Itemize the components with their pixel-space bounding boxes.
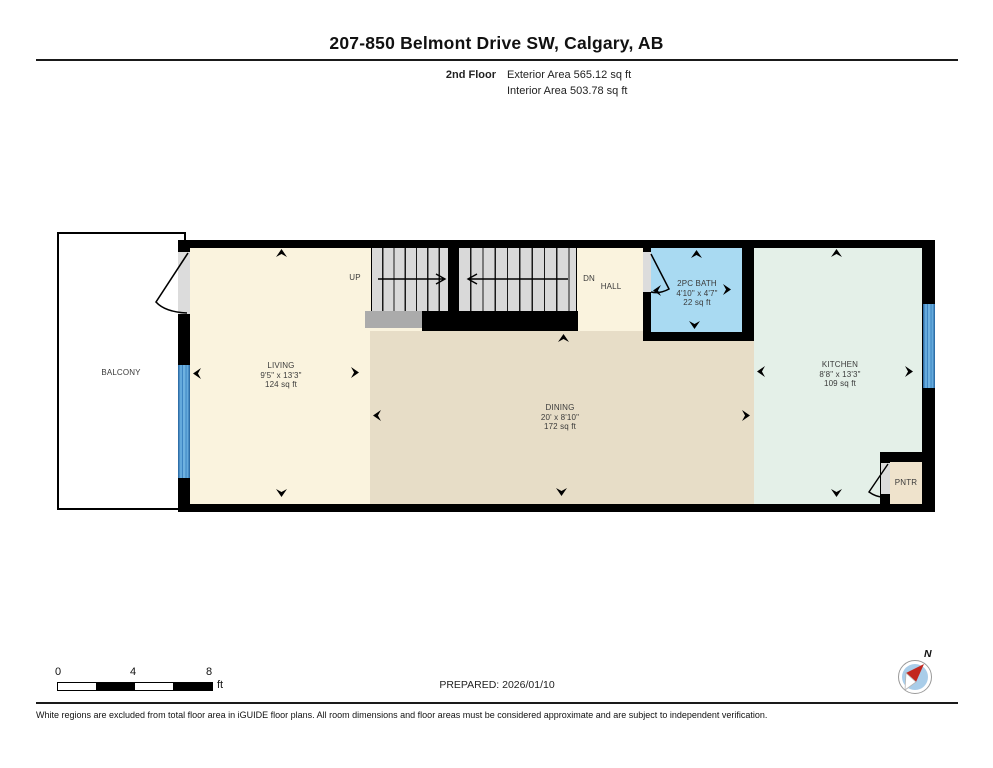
scale-tick-0: 0 [52, 666, 64, 678]
bath-label: 2PC BATH 4'10" x 4'7" 22 sq ft [676, 279, 717, 308]
disclaimer-text: White regions are excluded from total fl… [36, 710, 966, 720]
understair-wall [422, 311, 578, 331]
kitchen-label: KITCHEN 8'8" x 13'3" 109 sq ft [819, 360, 860, 389]
floor-plan-page: 207-850 Belmont Drive SW, Calgary, AB 2n… [0, 0, 993, 768]
stairs-divider-wall [448, 247, 458, 312]
pantry-door-opening [881, 463, 890, 494]
prepared-date: PREPARED: 2026/01/10 [397, 679, 597, 691]
scale-bar [57, 682, 213, 691]
kitchen-window [923, 304, 935, 388]
header-divider [36, 59, 958, 61]
floor-label: 2nd Floor [430, 69, 496, 81]
stairs-up-flight [371, 247, 449, 312]
stairs-up-label: UP [349, 273, 360, 283]
hall-label: HALL [601, 282, 622, 292]
scale-tick-4: 4 [127, 666, 139, 678]
bath-door-opening [643, 252, 651, 292]
page-title: 207-850 Belmont Drive SW, Calgary, AB [0, 33, 993, 54]
stairs-down-flight [458, 247, 577, 312]
scale-tick-8: 8 [203, 666, 215, 678]
balcony-window [178, 365, 190, 478]
scale-unit: ft [217, 679, 223, 691]
pantry-label: PNTR [895, 478, 917, 488]
footer-divider [36, 702, 958, 704]
compass-icon [894, 654, 940, 700]
living-label: LIVING 9'5" x 13'3" 124 sq ft [260, 361, 301, 390]
north-label: N [924, 648, 932, 660]
exterior-area: Exterior Area 565.12 sq ft [507, 69, 631, 81]
dining-label: DINING 20' x 8'10" 172 sq ft [541, 403, 579, 432]
balcony-door-opening [178, 252, 190, 314]
stair-railing [365, 311, 422, 328]
interior-area: Interior Area 503.78 sq ft [507, 85, 627, 97]
stairs-down-label: DN [583, 274, 595, 284]
balcony-label: BALCONY [101, 368, 140, 378]
